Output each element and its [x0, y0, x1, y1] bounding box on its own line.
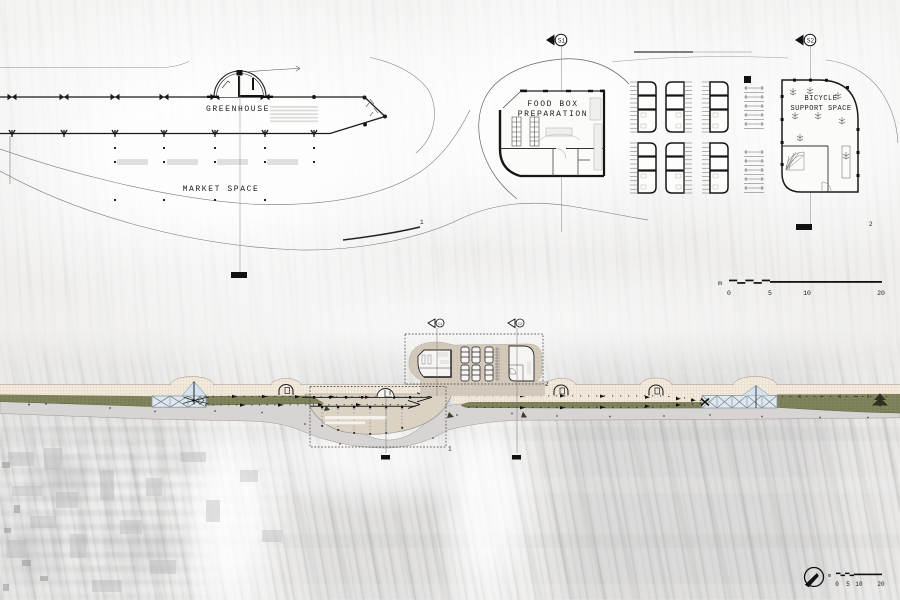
svg-text:2: 2 — [545, 381, 549, 388]
svg-text:SUPPORT SPACE: SUPPORT SPACE — [790, 105, 851, 113]
svg-text:S2: S2 — [807, 38, 815, 45]
svg-text:5: 5 — [768, 290, 772, 297]
svg-text:0: 0 — [835, 581, 839, 588]
svg-text:1: 1 — [420, 219, 424, 226]
svg-text:S1: S1 — [558, 38, 566, 45]
svg-text:MARKET SPACE: MARKET SPACE — [183, 185, 260, 194]
svg-text:GREENHOUSE: GREENHOUSE — [206, 105, 270, 114]
svg-text:0: 0 — [727, 290, 731, 297]
svg-text:20: 20 — [877, 290, 885, 297]
svg-text:2: 2 — [869, 221, 873, 228]
svg-text:20: 20 — [877, 581, 885, 588]
svg-text:m: m — [828, 573, 831, 579]
svg-text:C1: C1 — [438, 323, 442, 327]
svg-text:PREPARATION: PREPARATION — [518, 110, 588, 119]
svg-text:C2: C2 — [518, 323, 522, 327]
svg-text:10: 10 — [855, 581, 863, 588]
svg-text:FOOD BOX: FOOD BOX — [527, 100, 578, 109]
svg-text:1: 1 — [448, 446, 452, 453]
svg-text:10: 10 — [803, 290, 811, 297]
svg-text:BICYCLE: BICYCLE — [805, 95, 838, 103]
svg-text:5: 5 — [846, 581, 850, 588]
svg-text:m: m — [718, 280, 722, 287]
